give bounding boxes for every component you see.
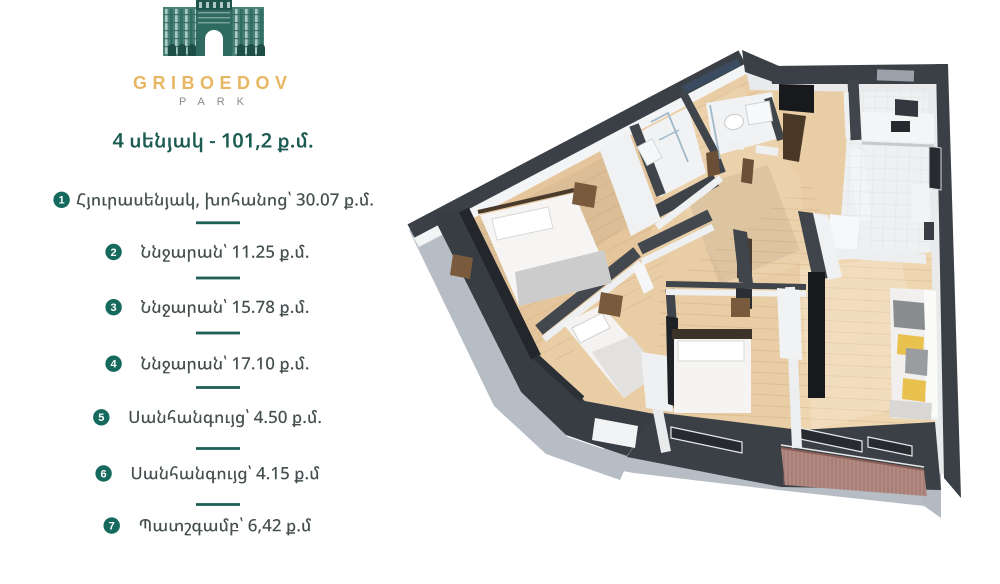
svg-text:3: 3	[111, 302, 117, 314]
svg-text:GRIBOEDOV: GRIBOEDOV	[133, 73, 287, 93]
svg-text:6: 6	[101, 468, 107, 480]
svg-text:5: 5	[98, 412, 104, 424]
svg-text:7: 7	[109, 521, 115, 533]
svg-text:4: 4	[111, 359, 118, 371]
svg-text:PARK: PARK	[179, 96, 245, 108]
svg-text:2: 2	[111, 247, 117, 259]
svg-text:1: 1	[59, 195, 65, 207]
